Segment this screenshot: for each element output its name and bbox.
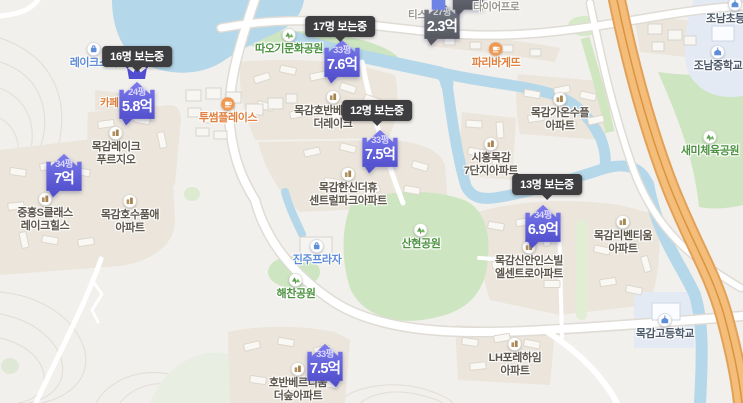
park-icon <box>703 130 717 144</box>
poi-apt-gaon: 목감가온수플아파트 <box>531 92 589 132</box>
viewers-badge: 16명 보는중 <box>102 46 172 67</box>
bakery-icon <box>489 42 503 56</box>
price-marker-1[interactable]: 24평 5.8억 <box>115 81 159 126</box>
apartment-icon <box>109 126 123 140</box>
price-marker-2[interactable]: 33평 7.6억 <box>320 39 364 84</box>
poi-paris-baguette: 파리바게뜨 <box>472 42 521 70</box>
marker-price: 7.5억 <box>303 357 347 378</box>
poi-school-mokgam-high: 목감고등학교 <box>636 313 694 341</box>
tire-pro-label: 타이어프로 <box>473 0 519 14</box>
marker-price: 5.8억 <box>115 95 159 116</box>
poi-school-jonam-elementary <box>728 0 742 12</box>
map-canvas[interactable]: 카페 티스 타이어프로 레이크스타 진주프라자 투썸플레이스 파리바게뜨 따오기… <box>0 0 743 403</box>
viewers-badge: 12명 보는중 <box>342 100 412 121</box>
poi-park-saemi: 새미체육공원 <box>681 130 739 158</box>
place-icon <box>87 42 101 56</box>
price-marker-3[interactable]: 33평 7.5억 <box>358 129 402 174</box>
poi-twosome: 투썸플레이스 <box>199 97 257 125</box>
place-icon <box>310 239 324 253</box>
poi-apt-prugio: 목감레이크푸르지오 <box>92 126 141 166</box>
marker-price: 2.3억 <box>420 15 464 36</box>
poi-apt-hosupumae: 목감호수품애아파트 <box>101 194 159 234</box>
apartment-icon <box>326 90 340 104</box>
mini-house-icon <box>430 0 447 10</box>
price-marker-4[interactable]: 34평 6.9억 <box>521 204 565 249</box>
poi-park-haechan: 해찬공원 <box>277 273 316 301</box>
apartment-icon <box>123 194 137 208</box>
price-marker-5[interactable]: 33평 7.5억 <box>303 343 347 388</box>
marker-price: 7억 <box>42 167 86 188</box>
park-icon <box>414 223 428 237</box>
school-icon <box>728 0 742 11</box>
viewers-badge: 13명 보는중 <box>512 174 582 195</box>
school-icon <box>658 313 672 327</box>
poi-apt-jungheung: 중흥S클래스레이크힐스 <box>17 192 73 232</box>
apartment-icon <box>616 215 630 229</box>
apartment-icon <box>484 137 498 151</box>
price-marker-6[interactable]: 34평 7억 <box>42 153 86 198</box>
poi-school-jonam-middle: 조남중학교 <box>694 45 743 73</box>
poi-apt-lh: LH포레하임아파트 <box>489 337 542 377</box>
school-icon <box>711 45 725 59</box>
apartment-icon <box>341 167 355 181</box>
marker-price: 6.9억 <box>521 218 565 239</box>
cafe-icon <box>221 97 235 111</box>
marker-price: 7.6억 <box>320 53 364 74</box>
poi-apt-riventium: 목감리벤티움아파트 <box>594 215 652 255</box>
apartment-icon <box>508 337 522 351</box>
poi-park-sanhyeon: 산현공원 <box>402 223 441 251</box>
park-icon <box>282 28 296 42</box>
marker-price: 7.5억 <box>358 143 402 164</box>
poi-school-jonam-elementary-label: 조남초등학교 <box>706 10 743 26</box>
poi-jinju-plaza: 진주프라자 <box>293 239 342 267</box>
viewers-badge: 17명 보는중 <box>305 16 375 37</box>
poi-apt-siheung-7danji: 시흥목감7단지아파트 <box>464 137 518 177</box>
apartment-icon <box>553 92 567 106</box>
park-icon <box>289 273 303 287</box>
